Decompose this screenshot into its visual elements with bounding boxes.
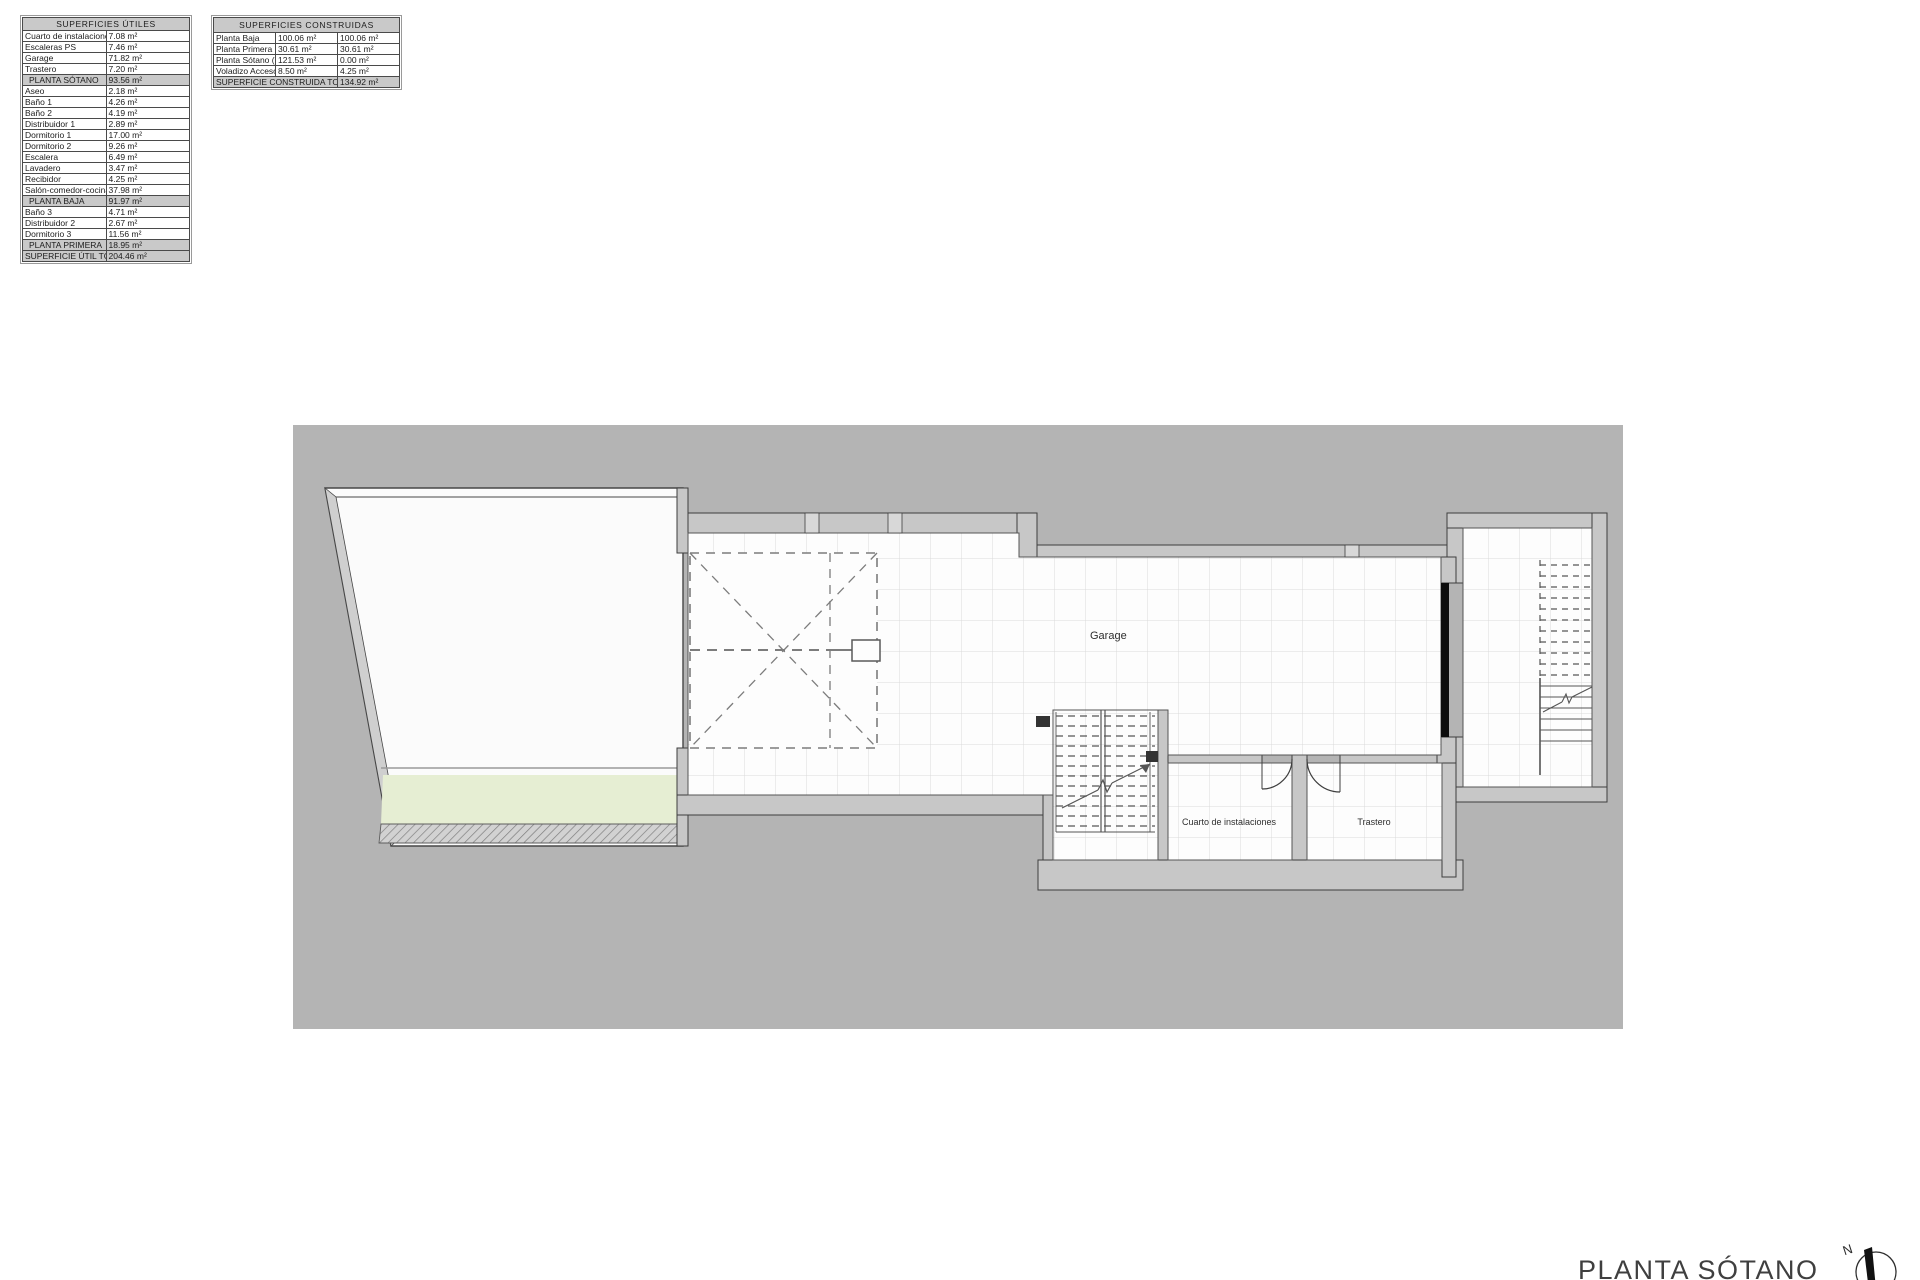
right-stair-room-floor	[1463, 528, 1592, 787]
sheet-title: PLANTA SÓTANO	[1578, 1254, 1819, 1280]
black-section-wall	[1441, 583, 1449, 737]
cuarto-label: Cuarto de instalaciones	[1182, 817, 1277, 827]
compass-north-label: N	[1841, 1241, 1855, 1258]
north-compass-icon: N	[1841, 1241, 1896, 1280]
floor-plan: Garage Cuarto de instalaciones Trastero …	[0, 0, 1920, 1280]
trastero-label: Trastero	[1357, 817, 1390, 827]
green-strip	[381, 775, 681, 824]
page: { "tables": { "utiles": { "title": "SUPE…	[0, 0, 1920, 1280]
trastero-floor	[1307, 763, 1442, 860]
garage-label: Garage	[1090, 630, 1127, 642]
hatched-strip	[379, 824, 681, 843]
cuarto-floor	[1168, 763, 1292, 860]
ramp-motor-box	[852, 640, 880, 661]
ramp-dashed-area	[690, 553, 880, 748]
